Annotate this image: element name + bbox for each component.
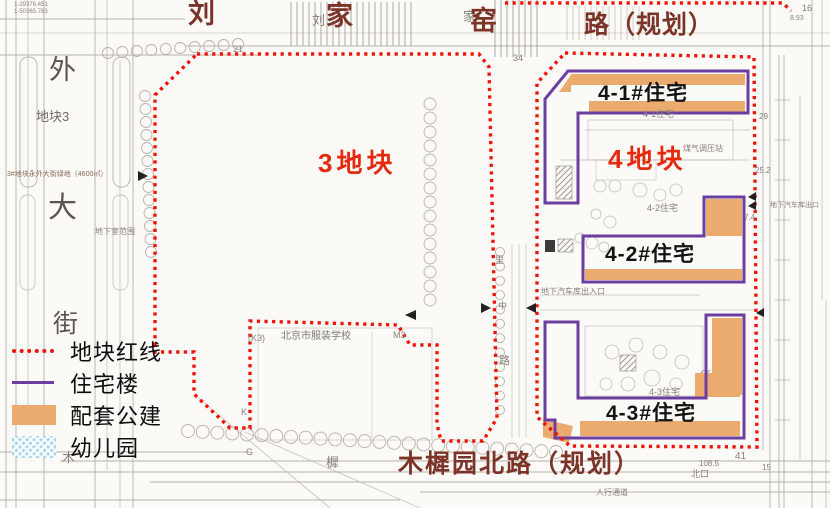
map-annotation: G [246, 448, 253, 457]
plot3-boundary [155, 54, 497, 441]
map-annotation: 1-50365.783 [14, 9, 48, 15]
public-swatch-icon [12, 405, 58, 425]
top-road-char-2: 家 [326, 3, 354, 30]
map-annotation: 25.2 [755, 167, 771, 175]
map-annotation: 3#地块永外大街绿地（4600㎡） [7, 171, 107, 178]
building-4-3-label: 4-3#住宅 [606, 403, 696, 424]
legend-label: 地块红线 [70, 335, 162, 367]
map-annotation: 北京市服装学校 [281, 332, 351, 342]
legend-item-public: 配套公建 [12, 402, 162, 427]
legend-label: 幼儿园 [70, 431, 139, 463]
map-annotation: K [241, 408, 247, 417]
legend-label: 住宅楼 [70, 367, 139, 399]
map-annotation: 29 [759, 113, 768, 121]
map-annotation: M3 [393, 331, 406, 340]
legend-item-redline: 地块红线 [12, 338, 162, 363]
map-annotation: 34 [513, 54, 523, 63]
top-road-suffix: 路（规划） [584, 13, 714, 38]
north-road-redline [505, 3, 791, 11]
map-annotation: 7.4 [744, 214, 755, 222]
kindergarten-swatch-icon [12, 436, 58, 458]
map-annotation: 4-1住宅 [643, 110, 674, 119]
legend-item-kindergarten: 幼儿园 [12, 434, 162, 459]
map-annotation: 15 [762, 464, 771, 472]
map-annotation: 北口 [691, 470, 709, 479]
map-annotation: 里 [495, 256, 504, 265]
map-annotation: 人行通道 [596, 489, 628, 497]
map-annotation: 路 [499, 356, 510, 367]
map-annotation: 刘 [312, 14, 325, 27]
residential-swatch-icon [12, 381, 58, 384]
map-annotation: 樨 [326, 456, 339, 469]
legend-label: 配套公建 [70, 399, 162, 431]
top-road-char-1: 刘 [188, 1, 216, 28]
building-4-2-label: 4-2#住宅 [605, 244, 695, 265]
plot4-label: 4地块 [608, 146, 686, 172]
map-annotation: 16 [802, 4, 812, 13]
map-annotation: 4-2住宅 [647, 204, 678, 213]
top-road-char-3: 窑 [470, 8, 498, 35]
legend: 地块红线 住宅楼 配套公建 幼儿园 [12, 338, 162, 466]
left-street-char-1: 外 [49, 57, 76, 84]
map-annotation: 21 [233, 45, 243, 54]
map-annotation: 1-29376.451 [14, 2, 48, 8]
map-annotation: 地下汽车库出口 [770, 202, 819, 209]
road-hatch-top-center [494, 0, 540, 57]
map-annotation: 108.5 [699, 460, 719, 468]
map-annotation: (K3) [248, 334, 265, 343]
map-annotation: 地块3 [36, 110, 69, 123]
left-street-char-2: 大 [48, 194, 77, 223]
plot3-label: 3地块 [318, 150, 396, 176]
map-annotation: 41 [735, 452, 746, 462]
basemap-blocks [545, 166, 712, 436]
map-annotation: 地下室范围 [95, 228, 135, 236]
map-annotation: 4-3住宅 [649, 388, 680, 397]
left-street-char-3: 街 [53, 312, 78, 337]
legend-item-residential: 住宅楼 [12, 370, 162, 395]
redline-swatch-icon [12, 349, 58, 353]
site-plan-map: 1-29376.4511-50365.783地块33#地块永外大街绿地（4600… [0, 0, 830, 508]
map-annotation: 煤气调压站 [683, 145, 723, 153]
bottom-road-label: 木樨园北路（规划） [398, 452, 641, 477]
map-annotation: 8.93 [790, 15, 804, 22]
map-annotation: 中 [498, 302, 507, 311]
map-annotation: 地下汽车库出入口 [541, 288, 605, 296]
building-4-1-label: 4-1#住宅 [598, 83, 688, 104]
